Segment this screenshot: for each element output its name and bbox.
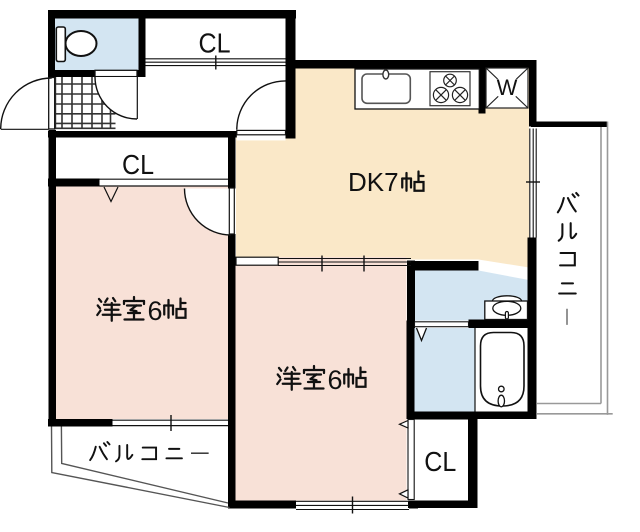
svg-text:CL: CL — [199, 28, 231, 59]
svg-text:CL: CL — [122, 149, 154, 180]
svg-text:DK7: DK7 — [348, 167, 399, 197]
svg-text:CL: CL — [424, 446, 456, 477]
svg-text:6: 6 — [148, 296, 163, 326]
svg-text:6: 6 — [328, 365, 343, 395]
svg-text:W: W — [497, 75, 518, 100]
